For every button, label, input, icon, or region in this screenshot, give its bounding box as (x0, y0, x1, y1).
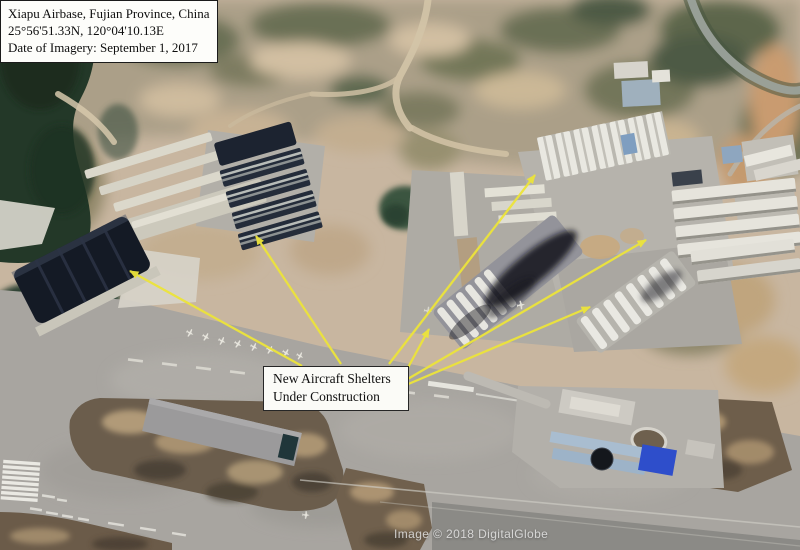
callout-line-2: Under Construction (273, 388, 404, 406)
info-box-line-2: 25°56'51.33N, 120°04'10.13E (8, 22, 209, 39)
shelter-callout-label: New Aircraft Shelters Under Construction (263, 366, 409, 411)
info-box-line-3: Date of Imagery: September 1, 2017 (8, 39, 209, 56)
imagery-info-box: Xiapu Airbase, Fujian Province, China 25… (0, 0, 218, 63)
satellite-imagery (0, 0, 800, 550)
satellite-screenshot: Xiapu Airbase, Fujian Province, China 25… (0, 0, 800, 550)
pond (591, 448, 613, 470)
info-box-line-1: Xiapu Airbase, Fujian Province, China (8, 5, 209, 22)
callout-line-1: New Aircraft Shelters (273, 370, 404, 388)
digitalglobe-watermark: Image © 2018 DigitalGlobe (394, 527, 548, 541)
